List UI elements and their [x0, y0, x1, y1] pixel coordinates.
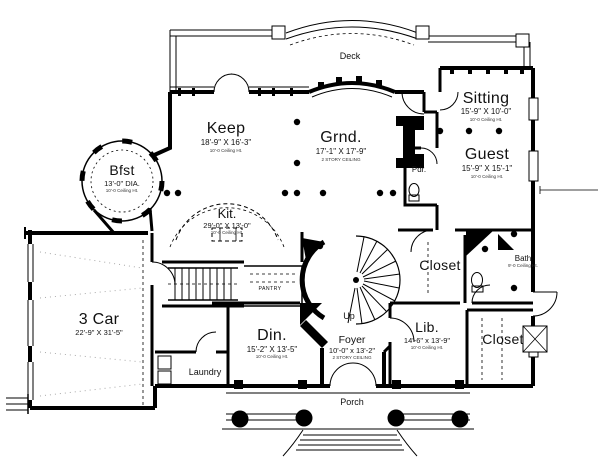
bath-angled-wall	[466, 230, 494, 256]
sitting-door-arc	[440, 92, 458, 110]
floor-plan-drawing: Deck Sitting 15'-9" X 10'-0" 10'-0 Ceili…	[0, 0, 600, 465]
dimension-line	[540, 186, 598, 194]
garage-label: 3 Car 22'-9" X 31'-5"	[75, 311, 123, 337]
svg-text:Guest: Guest	[465, 146, 509, 163]
floor-plan-page: Deck Sitting 15'-9" X 10'-0" 10'-0 Ceili…	[0, 0, 600, 465]
bath-door-arc	[472, 285, 490, 303]
side-door-arc	[533, 292, 557, 316]
foyer-label: Foyer 10'-0" x 13'-2" 2 STORY CEILING	[329, 334, 375, 360]
deck-post	[272, 26, 285, 39]
sitting-label: Sitting 15'-9" X 10'-0" 10'-0 Ceiling Ht…	[461, 90, 512, 122]
closet-upper-label: Closet	[419, 257, 460, 273]
dining-label: Din. 15'-2" X 13'-5" 10'-0 Ceiling Ht.	[247, 327, 298, 359]
svg-text:Keep: Keep	[207, 120, 246, 137]
straight-stair	[162, 262, 244, 306]
svg-text:Bfst: Bfst	[109, 162, 134, 178]
svg-text:17'-1" X 17'-9": 17'-1" X 17'-9"	[316, 147, 367, 156]
dryer	[158, 371, 171, 384]
svg-text:2 STORY CEILING: 2 STORY CEILING	[332, 355, 371, 360]
porch-column	[232, 411, 249, 428]
svg-text:9'-0 Ceiling Ht.: 9'-0 Ceiling Ht.	[508, 263, 538, 268]
deck-door-arc	[402, 92, 424, 114]
svg-text:15'-2" X 13'-5": 15'-2" X 13'-5"	[247, 345, 298, 354]
svg-text:10'-0 Ceiling Ht.: 10'-0 Ceiling Ht.	[210, 148, 243, 153]
svg-text:14'-6" x 13'-9": 14'-6" x 13'-9"	[404, 336, 450, 345]
porch-column	[296, 410, 313, 427]
svg-text:Bath: Bath	[515, 254, 531, 263]
keep-label: Keep 18'-9" X 16'-3" 10'-0 Ceiling Ht.	[201, 120, 252, 153]
svg-text:10'-0 Ceiling Ht.: 10'-0 Ceiling Ht.	[411, 345, 444, 350]
svg-text:3 Car: 3 Car	[79, 311, 120, 328]
deck-post	[416, 26, 429, 39]
deck-post	[516, 34, 529, 47]
front-steps	[296, 435, 404, 450]
svg-text:10'-0 Ceiling Ht.: 10'-0 Ceiling Ht.	[211, 230, 244, 235]
bath-angled-wall	[498, 234, 514, 250]
pantry-label: PANTRY	[259, 286, 282, 292]
svg-text:2 STORY CEILING: 2 STORY CEILING	[321, 157, 360, 162]
toilet	[472, 273, 483, 288]
porch-structure	[222, 380, 474, 456]
laundry-label: Laundry	[189, 367, 222, 377]
window	[529, 98, 538, 120]
laundry-door-arc	[196, 332, 216, 352]
deck-label: Deck	[340, 51, 361, 61]
svg-text:10'-0 Ceiling Ht.: 10'-0 Ceiling Ht.	[470, 117, 503, 122]
porch-column	[388, 410, 405, 427]
porch-column	[452, 411, 469, 428]
svg-text:Sitting: Sitting	[463, 90, 510, 107]
svg-text:29'-0" X 13'-0": 29'-0" X 13'-0"	[203, 221, 251, 230]
guest-label: Guest 15'-9" X 15'-1" 10'-0 Ceiling Ht.	[462, 146, 513, 179]
window	[529, 151, 538, 181]
svg-text:10'-0 Ceiling Ht.: 10'-0 Ceiling Ht.	[471, 174, 504, 179]
closet-door-arc	[411, 230, 433, 252]
porch-label: Porch	[340, 397, 364, 407]
svg-text:Grnd.: Grnd.	[320, 129, 362, 146]
svg-text:13'-0" DIA.: 13'-0" DIA.	[104, 179, 140, 188]
svg-text:22'-9" X 31'-5": 22'-9" X 31'-5"	[75, 328, 123, 337]
breakfast-label: Bfst 13'-0" DIA. 10'-0 Ceiling Ht.	[104, 162, 140, 193]
svg-text:15'-9" X 10'-0": 15'-9" X 10'-0"	[461, 107, 512, 116]
svg-text:15'-9" X 15'-1": 15'-9" X 15'-1"	[462, 164, 513, 173]
grand-room-label: Grnd. 17'-1" X 17'-9" 2 STORY CEILING	[316, 129, 367, 162]
svg-text:18'-9" X 16'-3": 18'-9" X 16'-3"	[201, 138, 252, 147]
garage-door-arc	[152, 262, 175, 285]
library-label: Lib. 14'-6" x 13'-9" 10'-0 Ceiling Ht.	[404, 319, 450, 350]
washer	[158, 356, 171, 369]
svg-text:10'-0 Ceiling Ht.: 10'-0 Ceiling Ht.	[106, 188, 139, 193]
walls	[25, 66, 598, 408]
fireplace	[396, 116, 424, 168]
french-door-arcs	[214, 74, 249, 92]
side-stoop	[6, 394, 28, 414]
svg-text:Kit.: Kit.	[218, 206, 237, 221]
svg-text:10'-0" x 13'-2": 10'-0" x 13'-2"	[329, 346, 375, 355]
svg-text:Din.: Din.	[257, 327, 287, 344]
svg-text:10'-0 Ceiling Ht.: 10'-0 Ceiling Ht.	[256, 354, 289, 359]
svg-text:Foyer: Foyer	[339, 334, 366, 346]
stair-up-label: Up	[343, 311, 355, 321]
powder-room-label: Pdr.	[412, 165, 426, 174]
front-door-arcs	[330, 363, 376, 386]
svg-text:Lib.: Lib.	[415, 319, 439, 335]
closet-lower-label: Closet	[482, 331, 523, 347]
